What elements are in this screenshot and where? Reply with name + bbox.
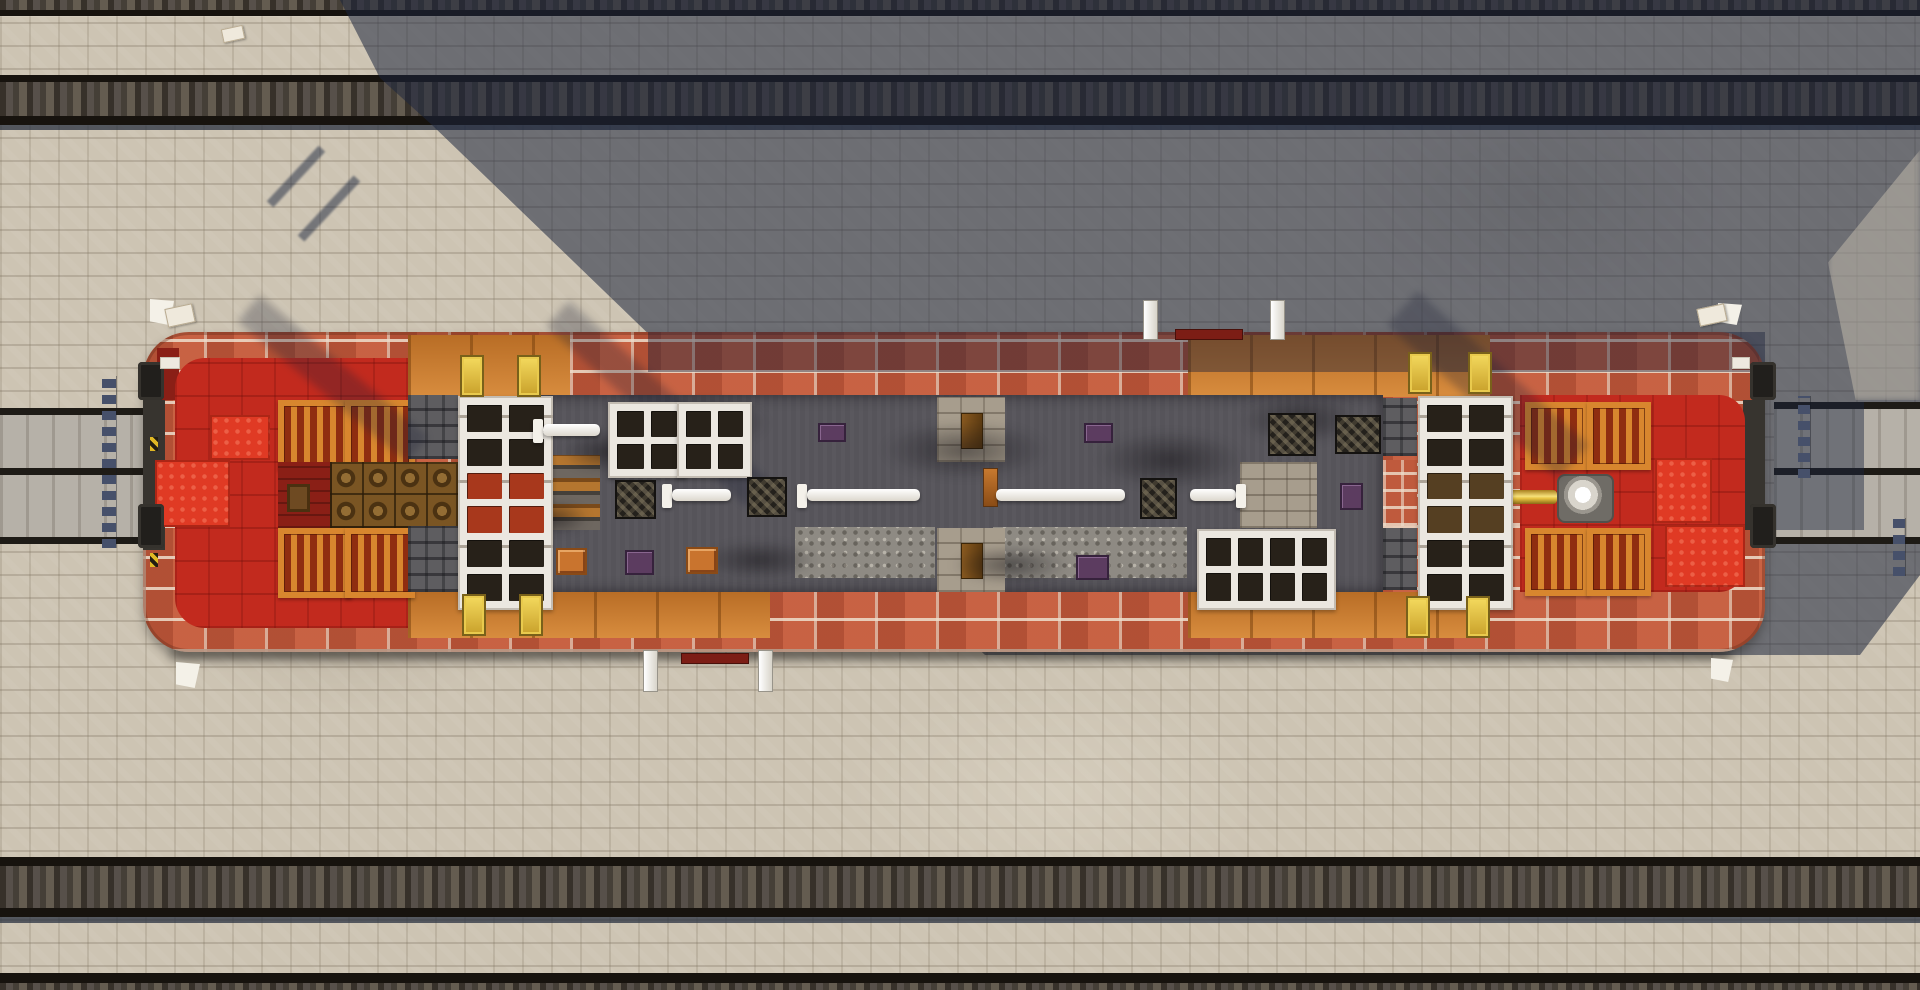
stone-platform	[937, 397, 1005, 462]
orange-shutter-grid	[1525, 528, 1589, 596]
barrel-hatch	[961, 413, 983, 449]
track-rail	[0, 908, 1920, 917]
barrel-hatch	[961, 543, 983, 579]
shadow-on-hull	[648, 332, 1765, 372]
stone-platform	[1240, 462, 1317, 528]
ship-bell	[1557, 474, 1614, 523]
orange-wood-band	[408, 335, 570, 397]
brick-pillar	[1383, 460, 1417, 526]
gold-bar	[1492, 490, 1557, 504]
track-ties	[0, 983, 1920, 990]
gravel-strip	[993, 527, 1187, 578]
red-hatch	[278, 462, 330, 528]
orange-wood-band	[408, 592, 770, 638]
orange-shutter-grid	[1587, 402, 1651, 470]
beam-shadow	[1774, 402, 1864, 530]
deck-stairs	[537, 455, 600, 530]
stone-platform	[937, 528, 1005, 592]
deepslate-column	[1383, 398, 1417, 456]
item-frame	[287, 484, 310, 512]
redstone-block	[1655, 458, 1712, 523]
track-rail	[0, 973, 1920, 983]
brick-hull	[143, 332, 1765, 652]
barrel-grid	[330, 462, 458, 528]
orange-shutter-grid	[278, 400, 352, 470]
orange-shutter-grid	[345, 528, 415, 598]
deepslate-column	[408, 526, 458, 592]
redstone-block	[210, 415, 270, 460]
stern-tip	[1743, 400, 1765, 530]
game-viewport[interactable]	[0, 0, 1920, 990]
orange-shutter-grid	[278, 528, 352, 598]
gravel-strip	[795, 527, 935, 578]
rail-shadow	[0, 917, 1920, 923]
deepslate-column	[1383, 528, 1417, 590]
orange-wood-band	[1188, 592, 1490, 638]
redstone-block	[155, 460, 230, 527]
track-rail	[0, 857, 1920, 866]
track-ties	[0, 866, 1920, 908]
orange-shutter-grid	[1587, 528, 1651, 596]
redstone-block	[1665, 525, 1745, 587]
guide-beam	[0, 468, 146, 544]
